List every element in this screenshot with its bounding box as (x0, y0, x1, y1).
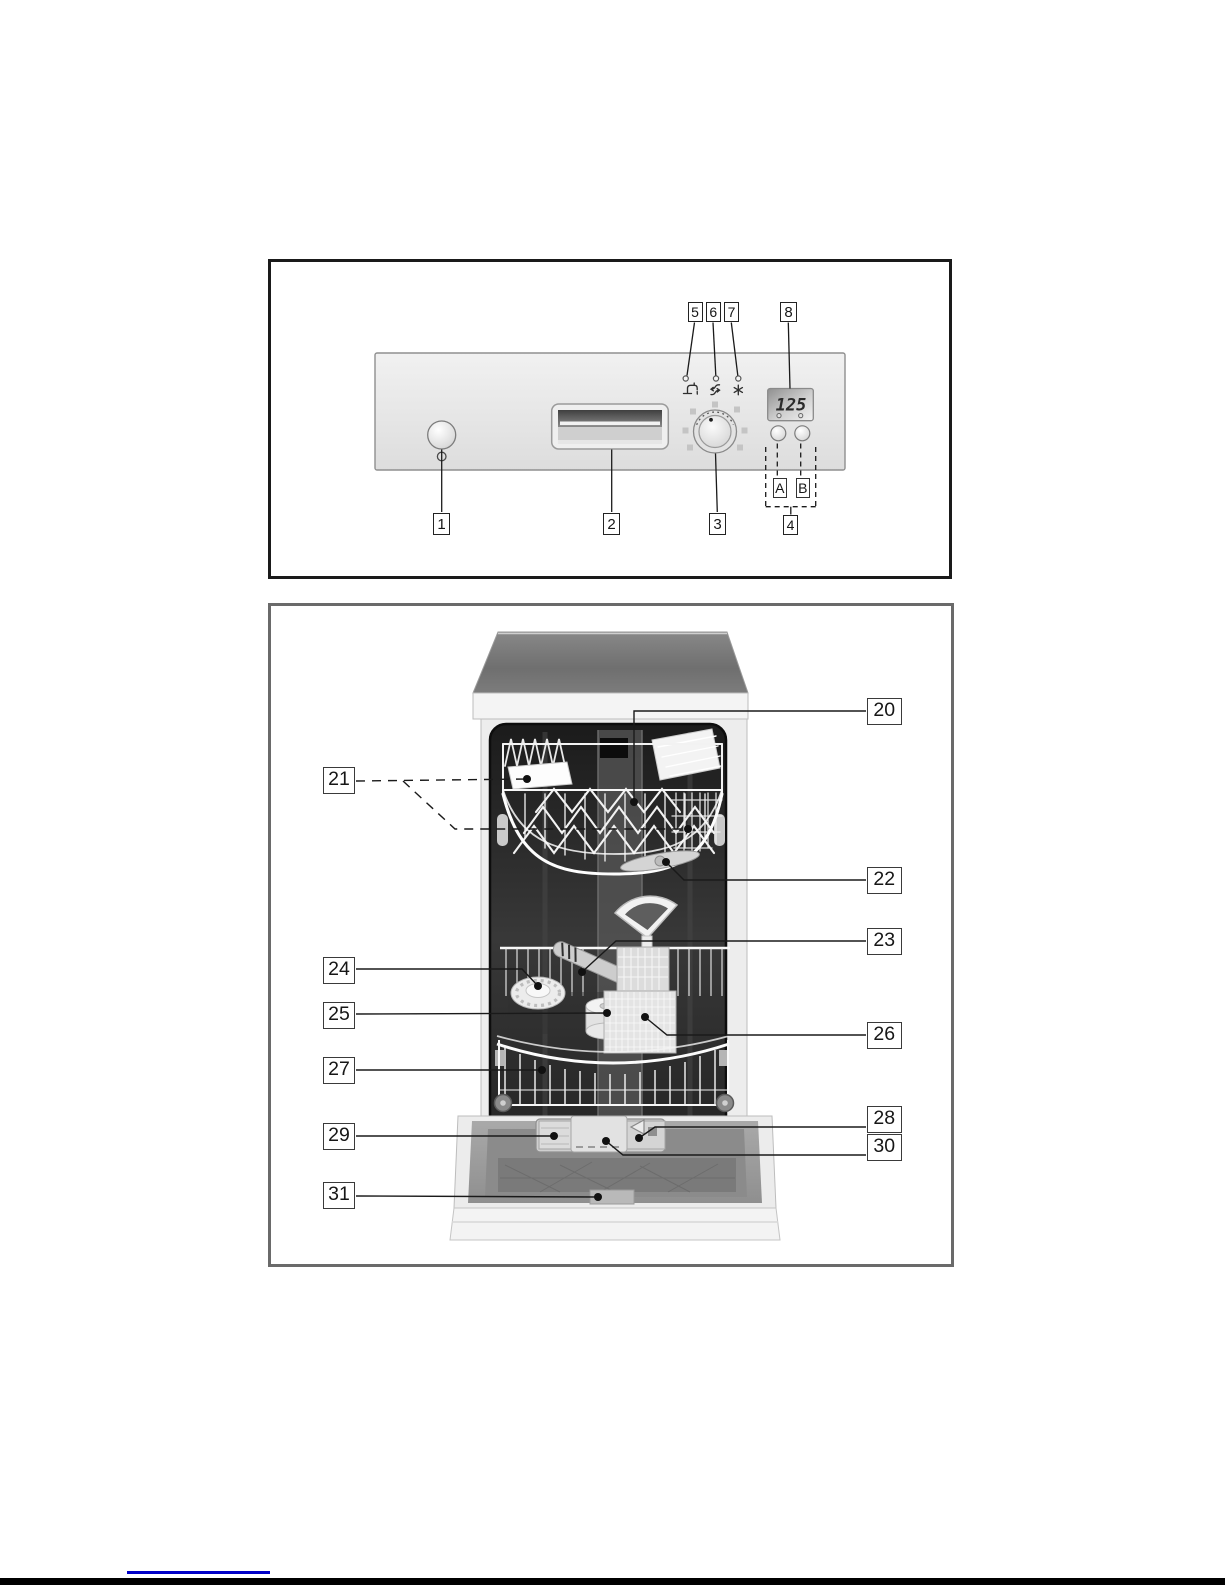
dishwasher-graphic (356, 632, 866, 1240)
callout-1: 1 (433, 513, 450, 535)
salt-led (713, 376, 718, 381)
worktop (473, 632, 748, 693)
inlet-duct (600, 738, 628, 758)
footer-link-underline[interactable] (127, 1571, 270, 1574)
knob-pointer (709, 418, 713, 422)
program-display-value: 125 (776, 396, 807, 416)
callout-21: 21 (323, 767, 355, 794)
callout-20: 20 (867, 698, 902, 725)
callout-7: 7 (724, 302, 739, 322)
dispenser-latch (627, 1121, 665, 1149)
callout-28: 28 (867, 1106, 902, 1133)
back-column (598, 730, 642, 1144)
door-handle (552, 404, 669, 449)
callout-6: 6 (706, 302, 721, 322)
callout-4: 4 (783, 515, 798, 535)
page-bottom-edge (0, 1578, 1225, 1585)
callout-22: 22 (867, 867, 902, 894)
cup-shelf (508, 762, 572, 789)
callout-31: 31 (323, 1182, 355, 1209)
callout-24: 24 (323, 957, 355, 984)
callout-30: 30 (867, 1134, 902, 1161)
callout-5: 5 (688, 302, 703, 322)
callout-b: B (796, 478, 810, 498)
callout-29: 29 (323, 1123, 355, 1150)
callout-a: A (773, 478, 787, 498)
callout-23: 23 (867, 928, 902, 955)
button-a (771, 426, 786, 441)
callout-25: 25 (323, 1002, 355, 1029)
callout-27: 27 (323, 1057, 355, 1084)
callout-8: 8 (780, 302, 797, 322)
manual-page: 125 (0, 0, 1225, 1585)
program-display: 125 (768, 389, 814, 421)
tap-led (683, 376, 688, 381)
callout-3: 3 (709, 513, 726, 535)
callout-2: 2 (603, 513, 620, 535)
callout-26: 26 (867, 1022, 902, 1049)
button-b (795, 426, 810, 441)
diagram-canvas: 125 (0, 0, 1225, 1585)
worktop-front-edge (473, 693, 748, 719)
door-front-edge (450, 1208, 780, 1240)
left-rail-recess (497, 814, 508, 846)
salt-cap (511, 977, 565, 1009)
rinse-led (736, 376, 741, 381)
